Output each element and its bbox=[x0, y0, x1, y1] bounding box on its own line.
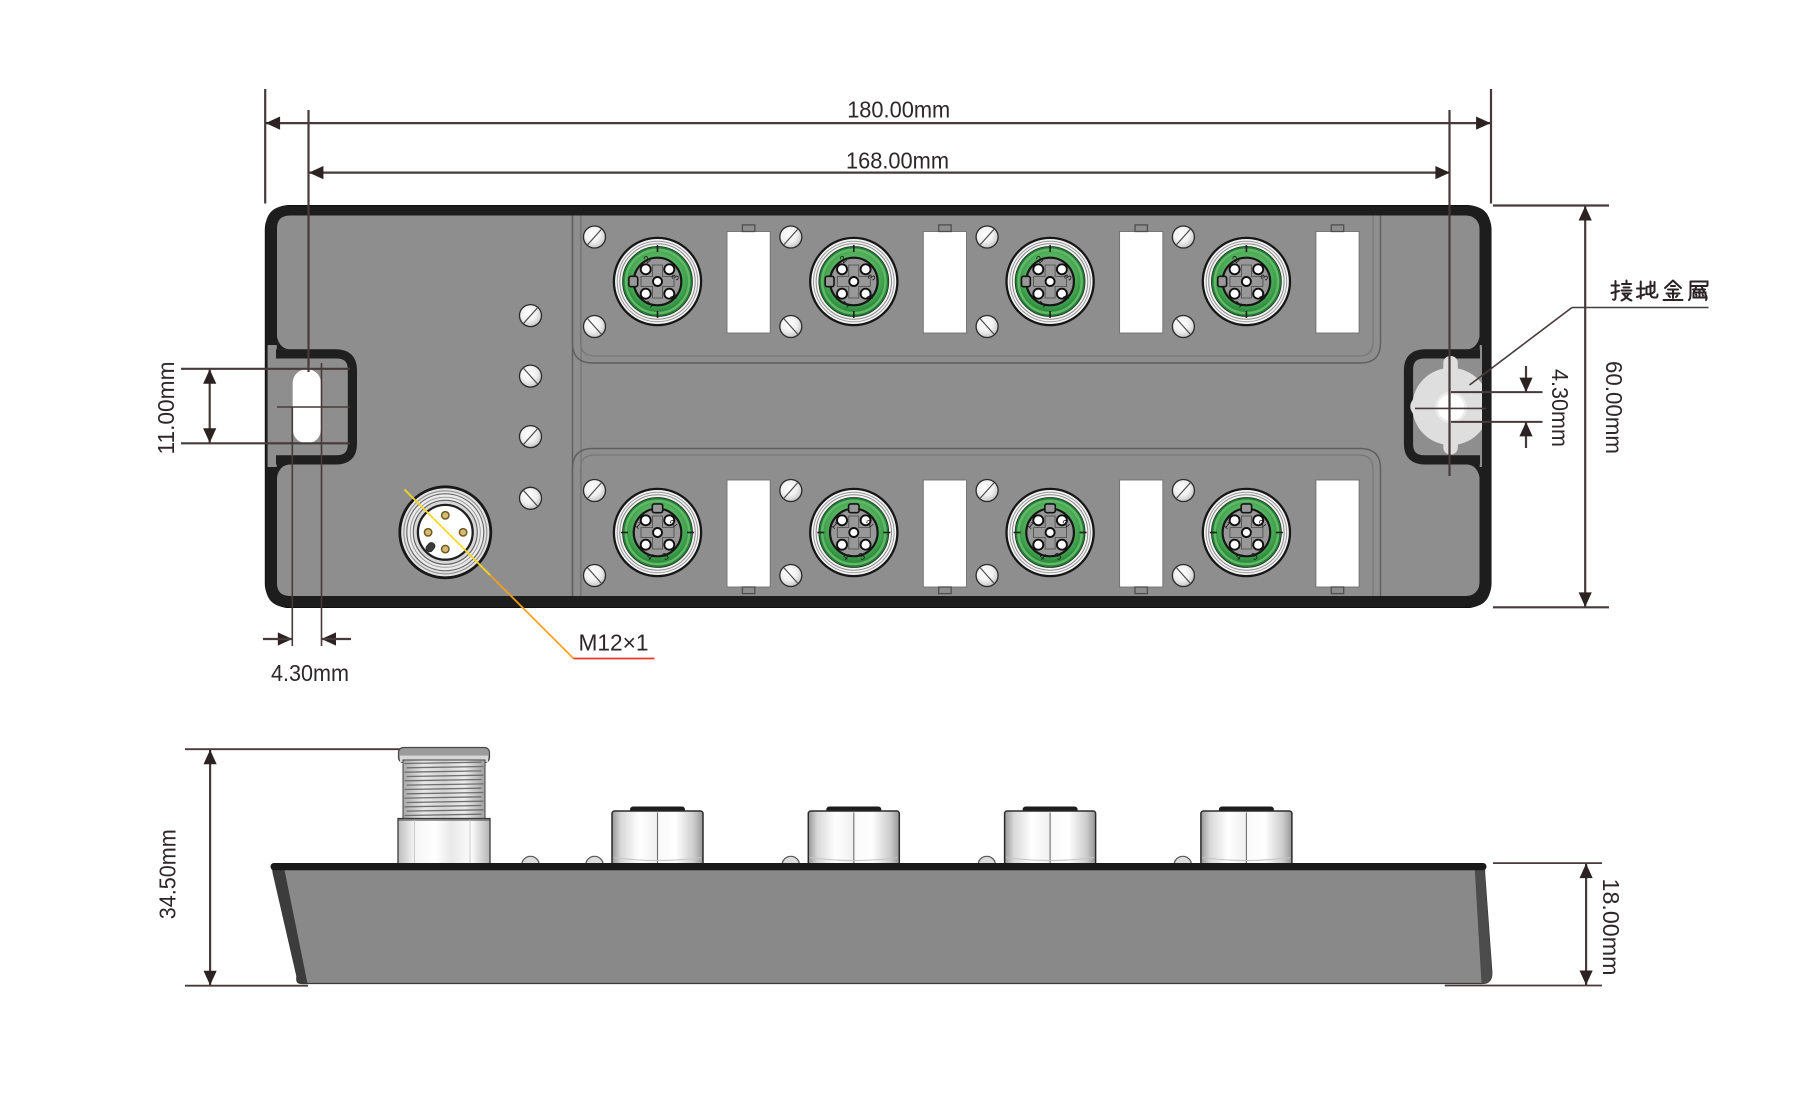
svg-text:180.00mm: 180.00mm bbox=[847, 97, 950, 123]
svg-text:11.00mm: 11.00mm bbox=[153, 362, 179, 455]
svg-text:M12×1: M12×1 bbox=[579, 630, 649, 656]
svg-text:4.30mm: 4.30mm bbox=[1547, 369, 1573, 447]
svg-text:34.50mm: 34.50mm bbox=[155, 829, 181, 919]
svg-text:60.00mm: 60.00mm bbox=[1601, 361, 1627, 454]
svg-text:168.00mm: 168.00mm bbox=[846, 148, 949, 174]
svg-text:4.30mm: 4.30mm bbox=[271, 660, 349, 686]
svg-text:18.00mm: 18.00mm bbox=[1598, 879, 1624, 976]
